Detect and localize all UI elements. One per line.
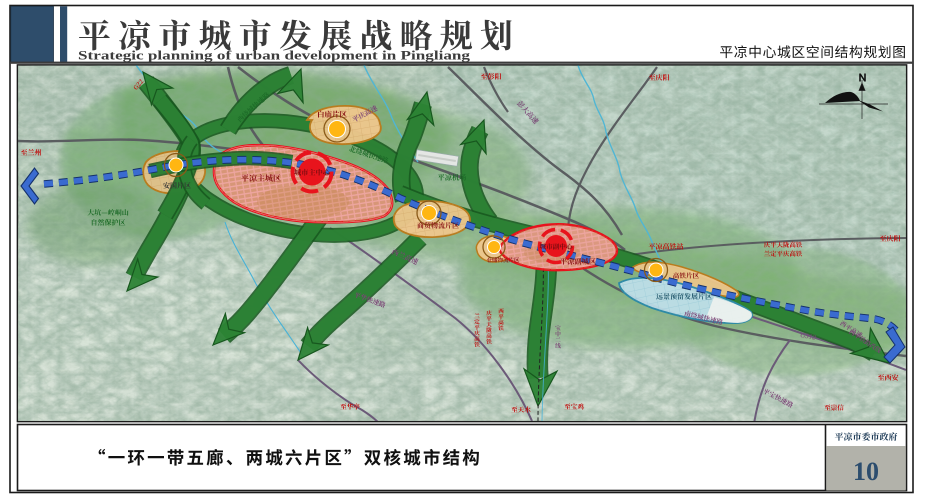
svg-text:10: 10 (853, 457, 879, 486)
svg-text:Strategic planning of urban de: Strategic planning of urban development … (78, 48, 471, 62)
